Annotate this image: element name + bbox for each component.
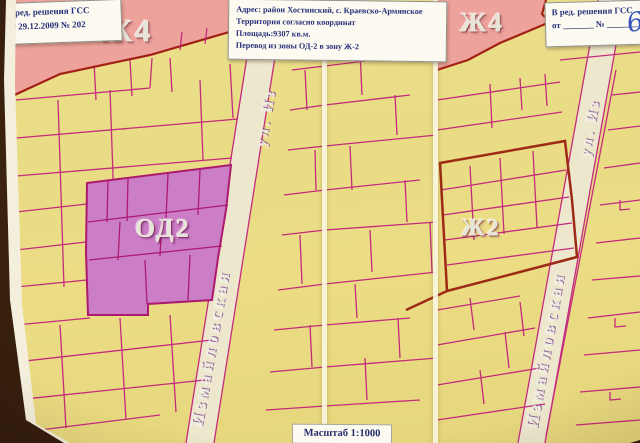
map-sheet: Ж4 Ж4 ОД2 Ж2 ул. Из Измайловская ул. Из … (0, 0, 640, 443)
note-box-address: Адрес: район Хостинский, с. Краевско-Арм… (228, 0, 448, 62)
sheet-seam-right (433, 0, 438, 443)
parcel-lines-svg (0, 0, 640, 443)
address-line4: Перевод из зоны ОД-2 в зону Ж-2 (236, 39, 444, 53)
sheet-seam-left (322, 0, 327, 443)
map-photo: Ж4 Ж4 ОД2 Ж2 ул. Из Измайловская ул. Из … (0, 0, 640, 443)
note-box-top-left: В ред. решения ГСС от 29.12.2009 № 202 (0, 0, 123, 45)
zone-od2-shape (86, 165, 231, 315)
scale-label: Масштаб 1:1000 (292, 424, 392, 443)
note-box-top-right: В ред. решения ГСС от _______ № _______ … (544, 0, 640, 47)
handwritten-number: 6 (624, 3, 640, 45)
